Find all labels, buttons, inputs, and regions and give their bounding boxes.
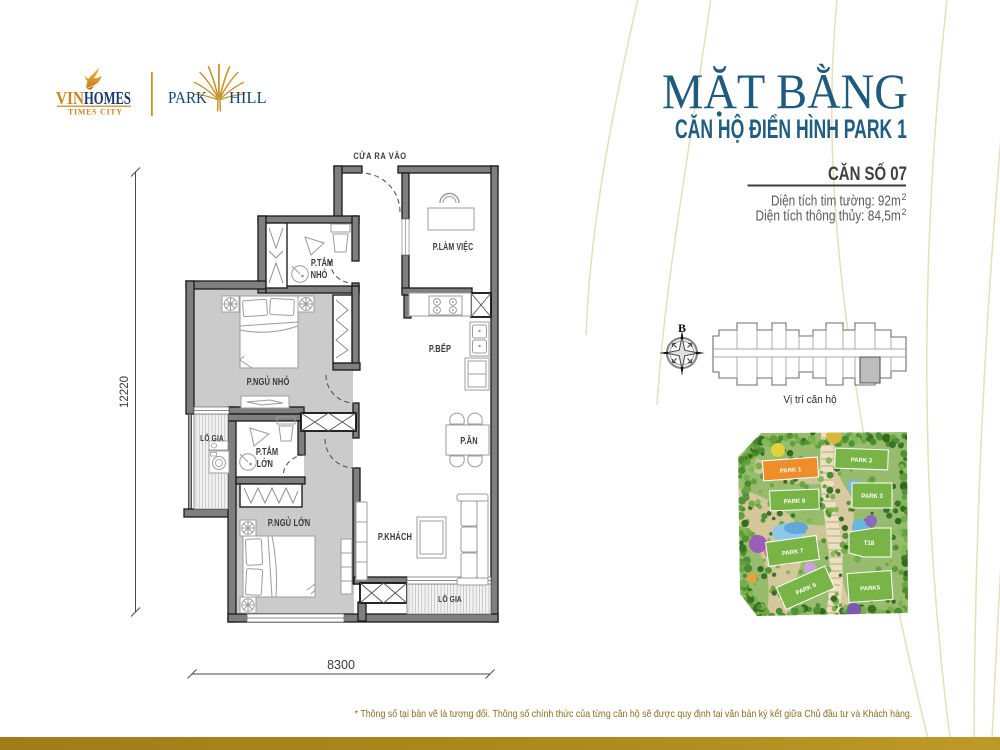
- svg-text:PARK 8: PARK 8: [784, 499, 806, 506]
- svg-text:PARK 2: PARK 2: [851, 458, 873, 465]
- svg-text:Vị trí căn hộ: Vị trí căn hộ: [783, 393, 836, 406]
- svg-text:PARK 3: PARK 3: [861, 494, 883, 500]
- svg-text:T18: T18: [864, 541, 875, 547]
